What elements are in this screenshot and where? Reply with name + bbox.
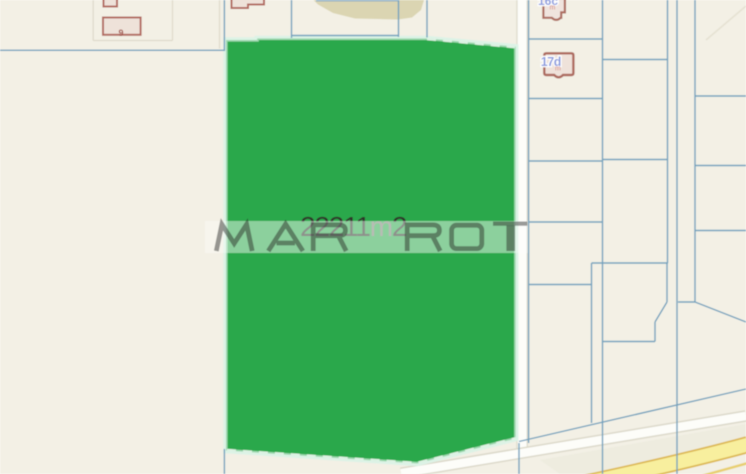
svg-text:m: m [555, 66, 561, 73]
svg-text:m: m [550, 5, 556, 12]
svg-text:9: 9 [119, 28, 124, 38]
